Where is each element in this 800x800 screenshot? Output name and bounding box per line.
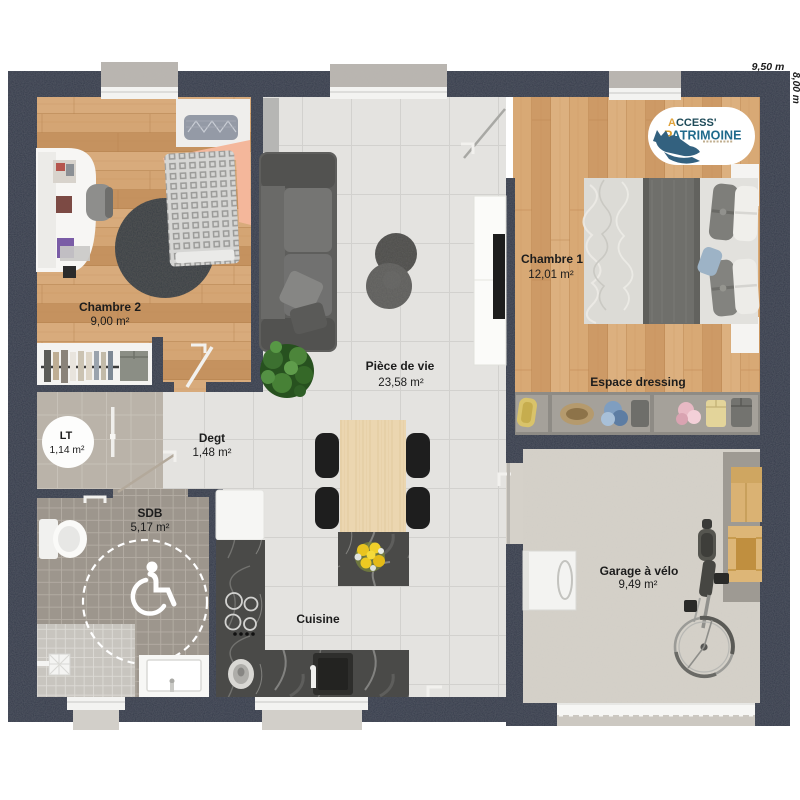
svg-text:Degt: Degt (199, 431, 225, 445)
svg-text:Espace dressing: Espace dressing (590, 375, 685, 389)
svg-text:Garage à vélo: Garage à vélo (600, 564, 679, 578)
svg-text:9,50 m: 9,50 m (752, 61, 785, 73)
svg-text:1,14 m²: 1,14 m² (50, 445, 85, 456)
svg-text:9,00 m²: 9,00 m² (91, 316, 130, 328)
svg-text:9,49 m²: 9,49 m² (619, 579, 658, 591)
svg-text:Cuisine: Cuisine (296, 612, 340, 626)
svg-text:Chambre 2: Chambre 2 (79, 300, 141, 314)
svg-text:SDB: SDB (138, 506, 163, 520)
svg-text:5,17 m²: 5,17 m² (131, 522, 170, 534)
svg-text:Chambre 1: Chambre 1 (521, 252, 583, 266)
svg-text:Pièce de vie: Pièce de vie (366, 359, 435, 373)
svg-text:ACCESS': ACCESS' (668, 117, 717, 129)
svg-text:8,00 m: 8,00 m (790, 72, 800, 104)
svg-text:23,58 m²: 23,58 m² (378, 377, 424, 389)
svg-text:1,48 m²: 1,48 m² (193, 447, 232, 459)
svg-text:LT: LT (60, 430, 73, 442)
svg-text:12,01 m²: 12,01 m² (528, 269, 574, 281)
